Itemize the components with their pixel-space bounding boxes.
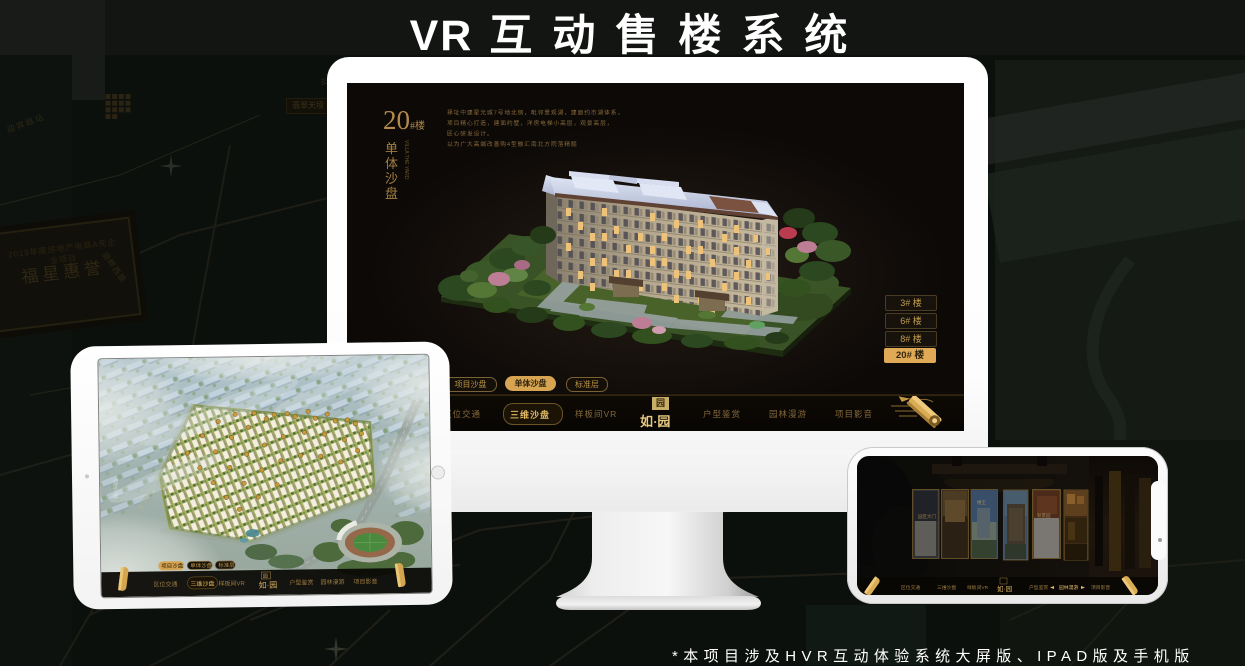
svg-text:如·园: 如·园	[997, 584, 1012, 593]
svg-text:项目影音: 项目影音	[1091, 584, 1110, 591]
svg-text:如·园: 如·园	[258, 580, 277, 590]
svg-text:标准层: 标准层	[218, 561, 235, 569]
svg-text:区位交通: 区位交通	[901, 584, 920, 591]
svg-text:三维沙盘: 三维沙盘	[937, 584, 956, 591]
svg-text:园林漫游: 园林漫游	[1059, 584, 1078, 591]
svg-text:园: 园	[263, 574, 268, 580]
svg-text:园区三路: 园区三路	[112, 479, 118, 500]
svg-text:户型鉴赏: 户型鉴赏	[1029, 584, 1048, 591]
svg-text:样板间VR: 样板间VR	[967, 584, 989, 591]
